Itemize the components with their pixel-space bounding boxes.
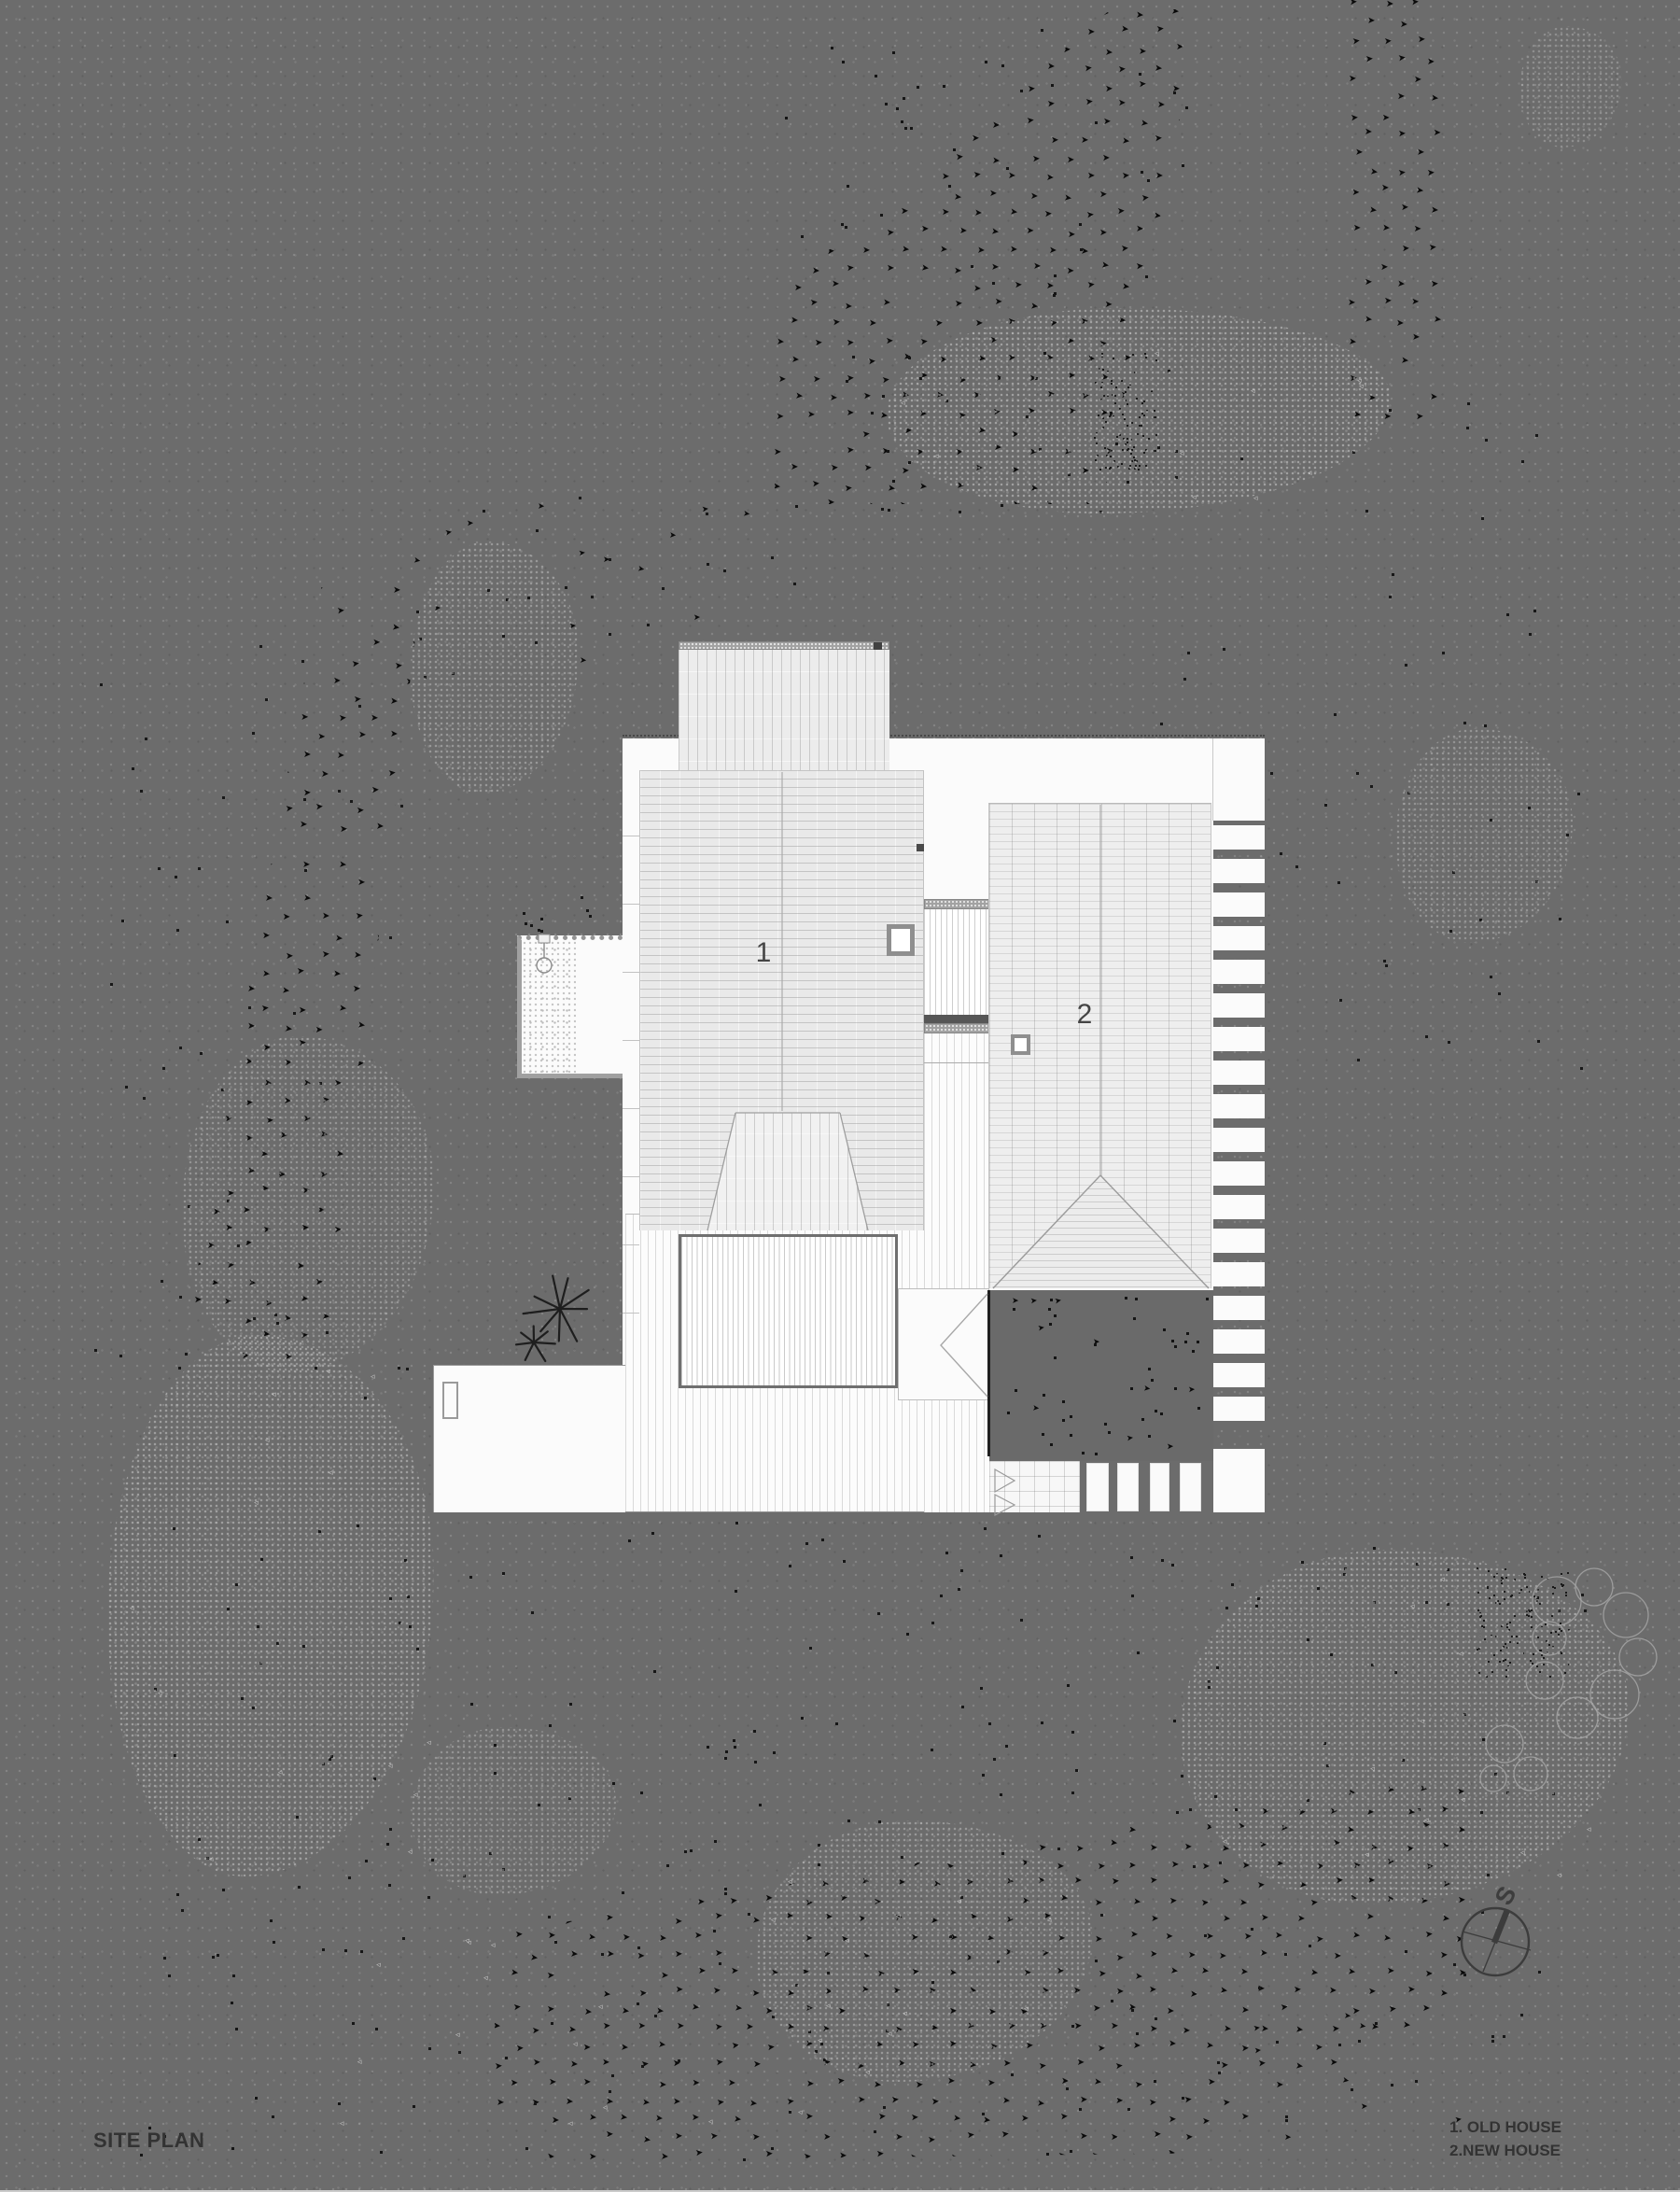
- drawing-title: SITE PLAN: [93, 2129, 204, 2153]
- legend-new-house: 2.NEW HOUSE: [1449, 2139, 1561, 2162]
- legend-old-house: 1. OLD HOUSE: [1449, 2115, 1561, 2139]
- vegetation-layer-above: ➤➤➤➤➤➤➤➤➤➤: [0, 0, 1680, 2192]
- legend: 1. OLD HOUSE 2.NEW HOUSE: [1449, 2115, 1561, 2162]
- site-plan-canvas: ➤➤➤➤➤➤➤➤➤➤➤➤➤➤➤➤➤➤➤➤➤➤➤➤➤➤➤➤➤➤➤➤➤➤➤➤➤➤➤➤…: [0, 0, 1680, 2192]
- scatter-dots: [997, 1296, 1207, 1454]
